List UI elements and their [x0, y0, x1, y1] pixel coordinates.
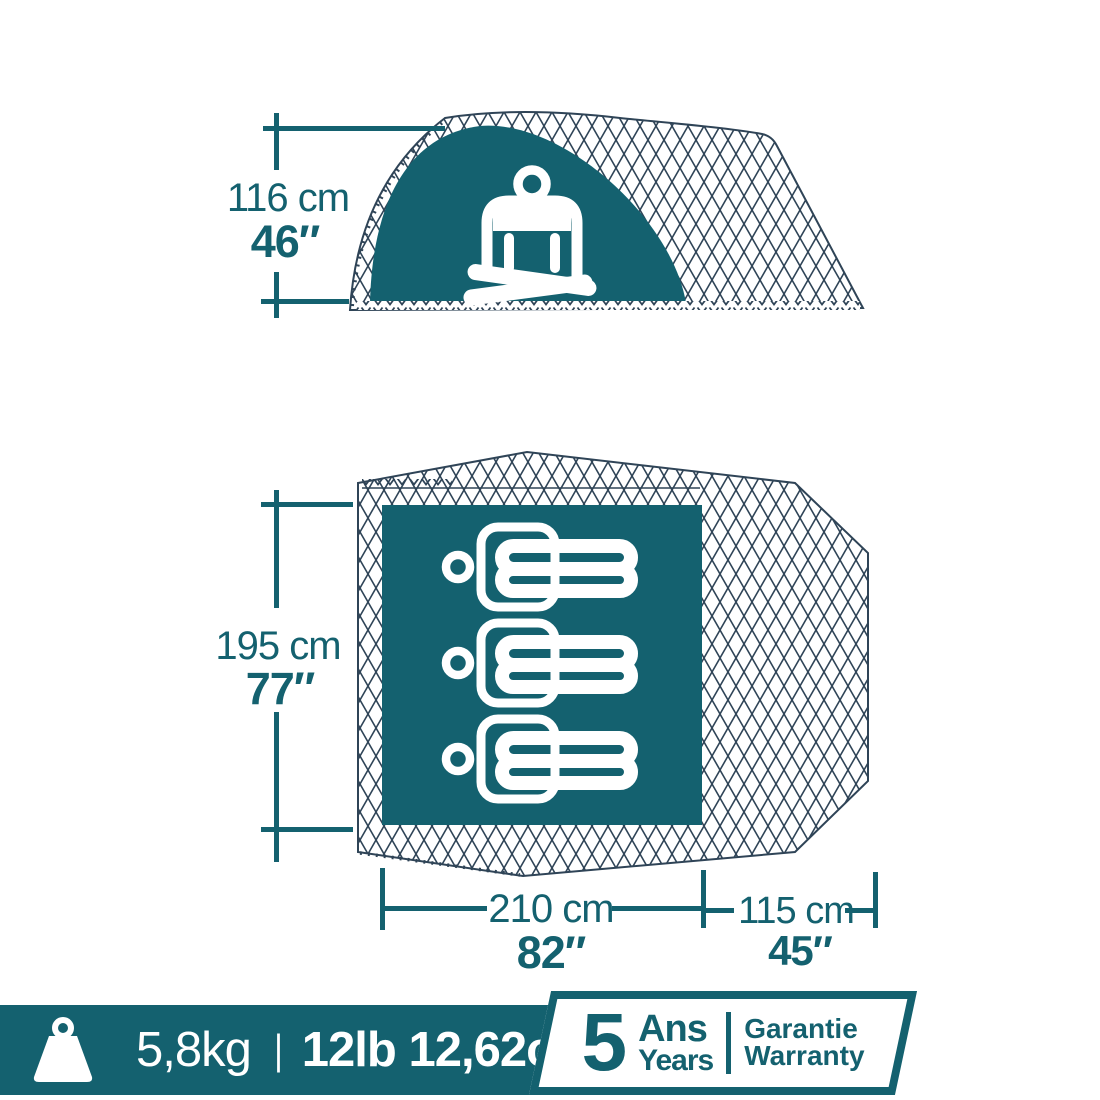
length-tick-mid [701, 870, 706, 928]
height-inch-label: 46″ [185, 219, 385, 264]
weight-metric: 5,8kg [136, 1022, 251, 1078]
warranty-duration-fr: Ans [638, 1011, 713, 1047]
height-dim-line-bottom [274, 272, 279, 318]
tent-body [350, 112, 863, 310]
vestibule-line-b [845, 908, 875, 913]
height-dim-crossbar-bottom [261, 299, 349, 304]
warranty-years-number: 5 [581, 1008, 625, 1078]
tent-floor-plan [350, 445, 875, 885]
depth-dim-line-top [274, 490, 279, 608]
length-cm-label: 210 cm [466, 889, 636, 929]
warranty-label-fr: Garantie [744, 1016, 864, 1043]
tent-dimensions-infographic: 116 cm 46″ [0, 0, 1100, 1100]
warranty-content: 5 Ans Years Garantie Warranty [548, 999, 898, 1087]
warranty-duration: Ans Years [638, 1011, 713, 1076]
length-tick-left [380, 868, 385, 930]
length-inch-label: 82″ [466, 930, 636, 975]
depth-dim-line-bottom [274, 712, 279, 862]
vestibule-inch-label: 45″ [720, 930, 880, 972]
length-line-b [612, 906, 702, 911]
height-cm-label: 116 cm [188, 178, 388, 218]
depth-cm-label: 195 cm [178, 626, 378, 666]
weight-banner: 5,8kg | 12lb 12,62oz [0, 1005, 600, 1095]
warranty-duration-en: Years [638, 1047, 713, 1076]
weight-separator: | [274, 1026, 283, 1074]
depth-dim-crossbar-bottom [261, 827, 353, 832]
warranty-label: Garantie Warranty [744, 1016, 864, 1069]
height-dim-crossbar-top [263, 126, 445, 131]
vestibule-tick-right [873, 872, 878, 928]
warranty-divider [726, 1012, 731, 1074]
weight-icon [30, 1015, 96, 1085]
tent-side-view [340, 100, 875, 320]
warranty-badge: 5 Ans Years Garantie Warranty [529, 991, 917, 1095]
depth-inch-label: 77″ [180, 666, 380, 711]
warranty-label-en: Warranty [744, 1043, 864, 1070]
height-dim-line-top [274, 113, 279, 170]
